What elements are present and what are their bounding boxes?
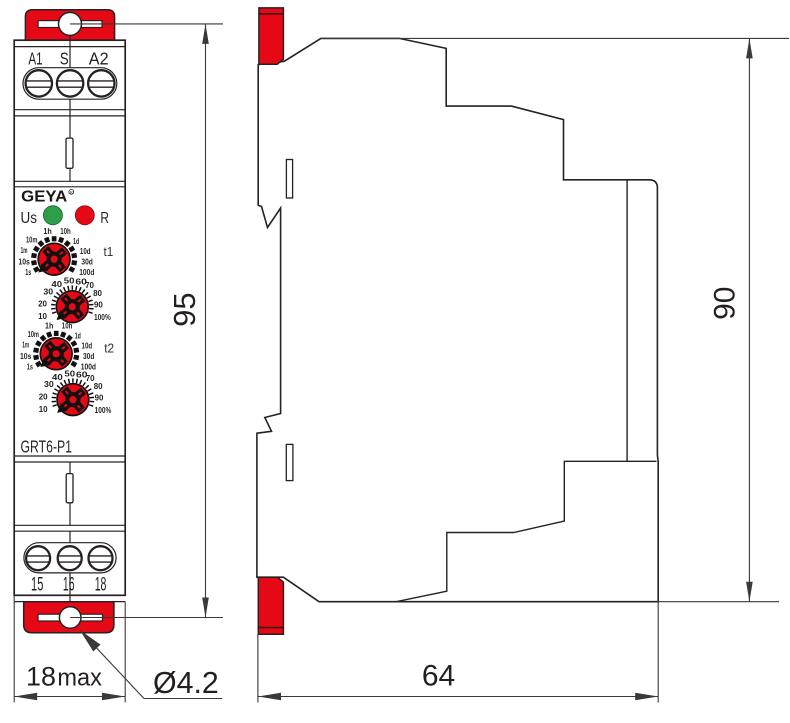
svg-text:30d: 30d <box>81 258 92 267</box>
svg-text:90: 90 <box>94 301 103 310</box>
svg-text:15: 15 <box>31 574 43 596</box>
svg-text:GEYA: GEYA <box>21 189 67 206</box>
svg-text:1s: 1s <box>27 363 33 372</box>
svg-text:10h: 10h <box>60 227 71 236</box>
svg-text:80: 80 <box>93 289 102 298</box>
svg-text:30d: 30d <box>83 352 94 361</box>
svg-text:50: 50 <box>64 277 75 286</box>
svg-text:1m: 1m <box>21 246 28 255</box>
svg-text:10m: 10m <box>26 236 37 245</box>
svg-text:20: 20 <box>39 393 48 402</box>
svg-text:R: R <box>70 191 73 195</box>
svg-text:18: 18 <box>26 662 56 692</box>
svg-text:1s: 1s <box>25 268 31 277</box>
svg-text:R: R <box>100 210 109 227</box>
svg-text:t1: t1 <box>104 244 114 259</box>
svg-text:10: 10 <box>39 405 48 414</box>
svg-text:90: 90 <box>709 287 742 320</box>
svg-text:30: 30 <box>44 380 54 389</box>
svg-text:16: 16 <box>63 574 75 596</box>
svg-text:18: 18 <box>95 574 107 596</box>
svg-text:100%: 100% <box>94 313 111 322</box>
svg-text:10m: 10m <box>28 330 39 339</box>
svg-text:90: 90 <box>95 394 104 403</box>
svg-text:10d: 10d <box>80 247 91 256</box>
svg-text:10: 10 <box>38 312 47 321</box>
svg-text:100%: 100% <box>95 406 112 415</box>
svg-text:A1: A1 <box>28 48 42 68</box>
svg-text:1m: 1m <box>22 341 29 350</box>
svg-text:10h: 10h <box>62 322 73 331</box>
svg-text:80: 80 <box>94 382 103 391</box>
svg-text:1d: 1d <box>73 237 79 246</box>
svg-text:A2: A2 <box>89 48 109 68</box>
svg-text:10s: 10s <box>18 258 30 267</box>
svg-text:1h: 1h <box>45 322 53 331</box>
svg-text:1d: 1d <box>75 332 81 341</box>
svg-text:50: 50 <box>64 370 75 379</box>
svg-text:20: 20 <box>38 300 47 309</box>
svg-text:30: 30 <box>43 287 53 296</box>
svg-text:10s: 10s <box>20 352 32 361</box>
svg-text:GRT6-P1: GRT6-P1 <box>21 436 73 456</box>
svg-text:S: S <box>60 48 69 68</box>
svg-text:Us: Us <box>21 210 38 227</box>
svg-text:t2: t2 <box>104 341 114 356</box>
svg-text:Ø4.2: Ø4.2 <box>153 665 219 700</box>
svg-text:10d: 10d <box>82 341 93 350</box>
svg-text:64: 64 <box>422 660 455 693</box>
svg-text:1h: 1h <box>43 227 51 236</box>
svg-text:100d: 100d <box>79 268 94 277</box>
svg-text:95: 95 <box>167 292 202 326</box>
svg-text:max: max <box>57 665 102 692</box>
